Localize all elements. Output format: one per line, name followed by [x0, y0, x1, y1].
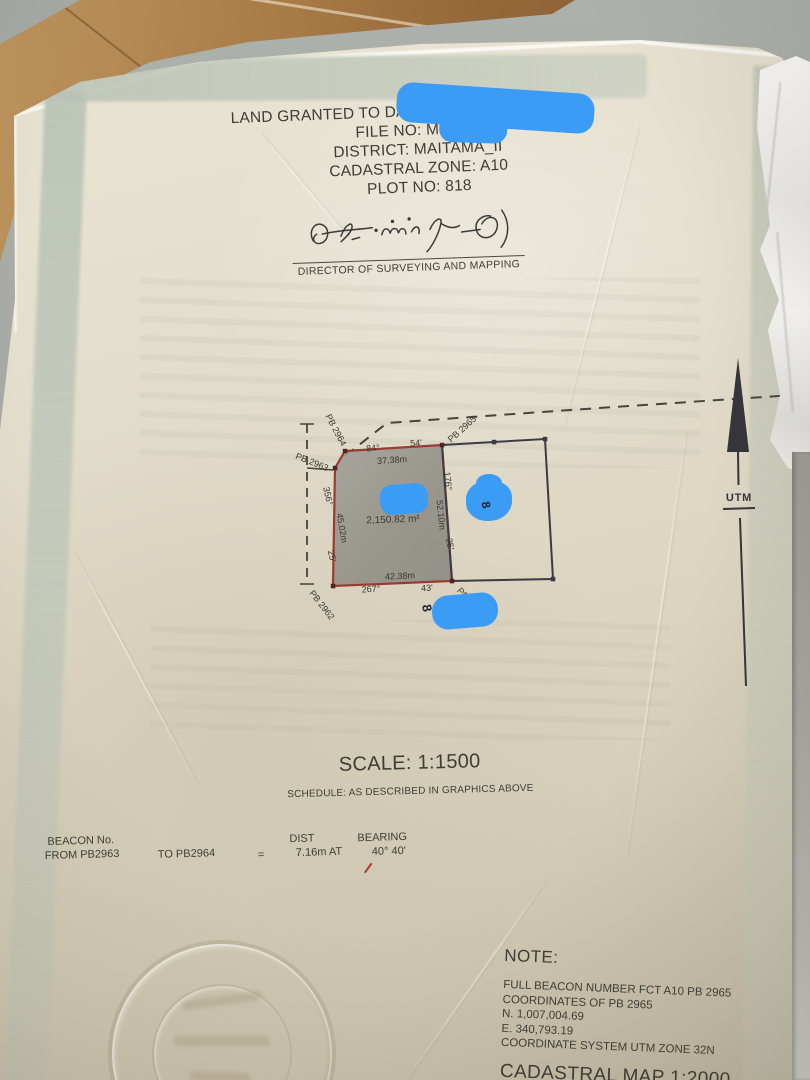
note-block: NOTE: FULL BEACON NUMBER FCT A10 PB 2965… [499, 946, 810, 1080]
dist-value: 7.16m AT [296, 846, 343, 859]
scale-block: SCALE: 1:1500 SCHEDULE: AS DESCRIBED IN … [269, 748, 550, 800]
schedule-label: SCHEDULE: AS DESCRIBED IN GRAPHICS ABOVE [270, 782, 550, 800]
plastic-wrinkle [765, 82, 782, 221]
photo-of-survey-document: LAND GRANTED TO DAVELL TD FILE NO: MISC … [0, 0, 810, 1080]
parcel-area-label: 2,150.82 m² [366, 514, 420, 527]
embossed-seal [108, 940, 336, 1080]
equals-sign: = [258, 849, 265, 861]
survey-document-paper: LAND GRANTED TO DAVELL TD FILE NO: MISC … [0, 0, 810, 1080]
bearing-value: 40° 40' [372, 845, 406, 858]
plastic-wrinkle [776, 232, 794, 411]
right-edge-bearing-deg: 176° [442, 471, 454, 491]
sleeve-edge-shadow [792, 452, 810, 1080]
bottom-edge-bearing-min: 43' [421, 583, 433, 594]
redaction-blob [439, 114, 508, 144]
redaction-blob [431, 591, 500, 631]
scale-label: SCALE: 1:1500 [269, 748, 550, 778]
redaction-blob [379, 482, 429, 515]
signature-block: DIRECTOR OF SURVEYING AND MAPPING [291, 202, 525, 278]
signature [291, 202, 525, 262]
beacon-from: FROM PB2963 [45, 848, 120, 862]
utm-label: UTM [720, 492, 758, 504]
top-edge-distance: 37.38m [377, 454, 408, 466]
top-edge-bearing-deg: 84° [366, 443, 380, 454]
cadastral-map-label: CADASTRAL MAP 1:2000 [499, 1060, 810, 1080]
dist-header: DIST [289, 832, 314, 845]
embossed-seal-text-mark [174, 1036, 270, 1046]
red-check-mark [364, 863, 373, 874]
bottom-edge-distance: 42.38m [385, 570, 416, 582]
cardboard-fold [132, 0, 429, 28]
bottom-edge-bearing-deg: 267° [361, 583, 380, 594]
note-lines: FULL BEACON NUMBER FCT A10 PB 2965 COORD… [501, 978, 810, 1063]
top-edge-bearing-min: 54' [410, 438, 422, 449]
right-edge-bearing-min: 25' [444, 537, 456, 550]
beacon-table: BEACON No. FROM PB2963 TO PB2964 = DIST … [39, 818, 481, 900]
beacon-to: TO PB2964 [158, 847, 216, 861]
beacon-col-header: BEACON No. [47, 834, 114, 848]
title-block: LAND GRANTED TO DAVELL TD FILE NO: MISC … [226, 96, 609, 206]
bearing-header: BEARING [357, 831, 407, 844]
